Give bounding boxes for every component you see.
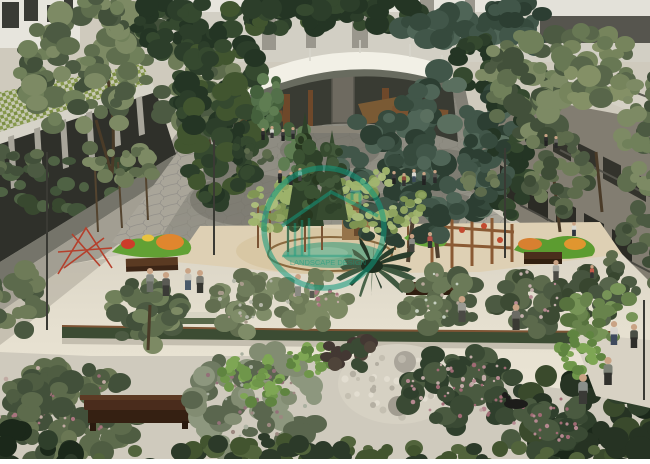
svg-text:LANDSCAPE DESIGN: LANDSCAPE DESIGN [290,258,366,267]
